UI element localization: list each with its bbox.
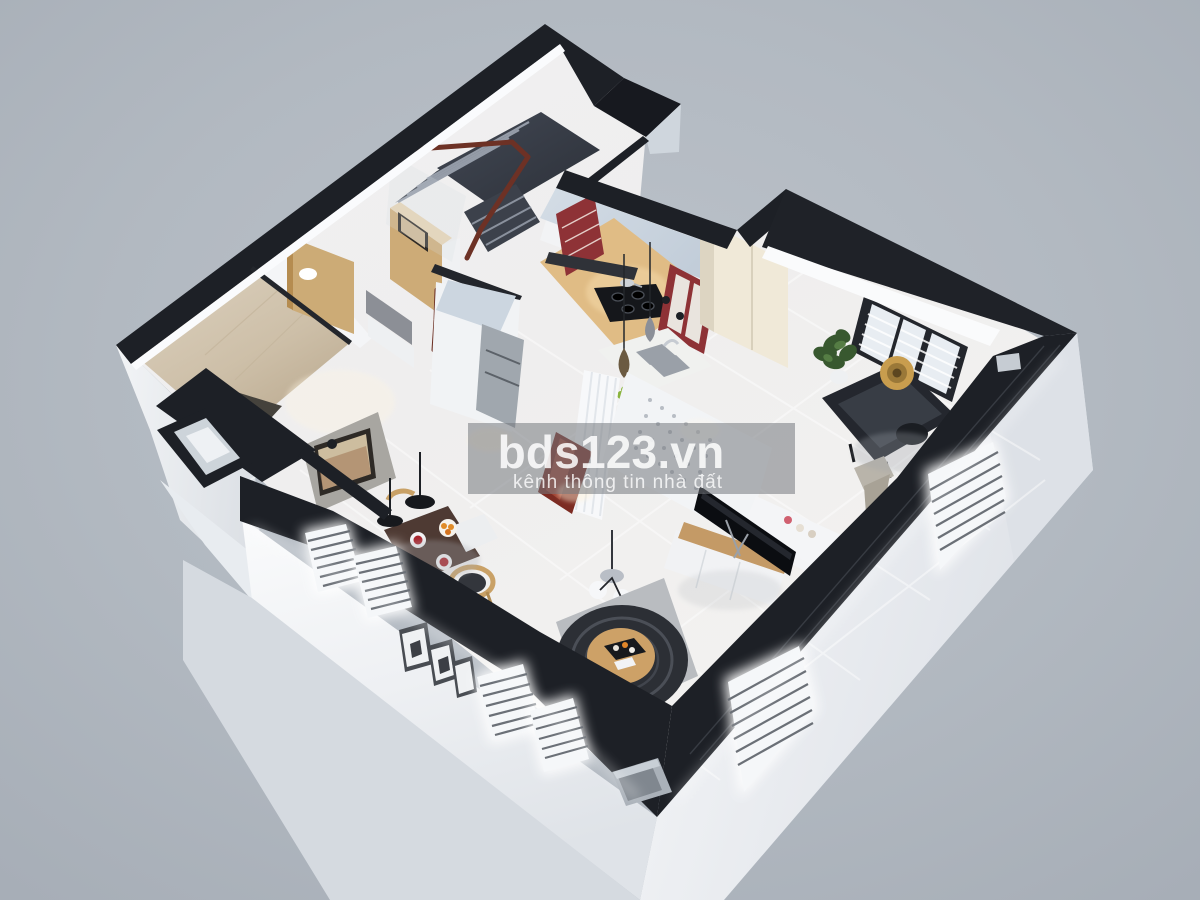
svg-text:kênh thông tin nhà đất: kênh thông tin nhà đất xyxy=(513,472,723,493)
svg-text:bds123.vn: bds123.vn xyxy=(498,426,725,478)
